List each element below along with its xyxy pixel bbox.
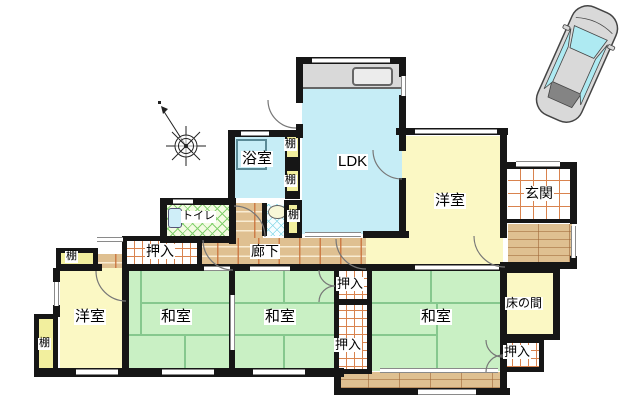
label-closet: 押入 — [503, 345, 531, 359]
tatami-line — [430, 268, 432, 304]
tatami-line — [372, 334, 436, 336]
window — [312, 58, 390, 63]
label-western-room: 洋室 — [434, 193, 466, 209]
wall — [296, 57, 303, 103]
label-bathroom: 浴室 — [241, 151, 273, 167]
toilet-icon — [168, 208, 182, 228]
window — [97, 237, 123, 242]
tatami-line — [283, 270, 285, 302]
window — [415, 129, 497, 134]
sliding-door — [380, 368, 498, 373]
window — [253, 369, 305, 375]
wall — [500, 164, 507, 238]
wall — [53, 268, 60, 282]
wall — [399, 57, 406, 77]
entrance-step-edge — [505, 219, 573, 223]
label-shelf: 棚 — [284, 175, 297, 187]
entrance-wood-hall — [508, 224, 572, 265]
tatami-line — [140, 302, 232, 304]
label-shelf: 棚 — [287, 210, 300, 222]
wall — [122, 268, 129, 372]
sliding-door — [305, 232, 361, 237]
wall — [553, 268, 560, 340]
wall — [500, 334, 558, 340]
wall — [228, 130, 235, 205]
label-alcove: 床の間 — [505, 297, 543, 310]
wall — [53, 305, 60, 317]
corridor-vertical — [235, 203, 263, 238]
wall — [570, 162, 577, 224]
wall — [500, 370, 507, 392]
sliding-door — [415, 265, 499, 270]
label-toilet: トイレ — [181, 211, 216, 223]
window — [173, 199, 193, 204]
wall — [363, 231, 409, 238]
tatami-line — [232, 302, 334, 304]
entrance-door — [516, 161, 560, 167]
label-closet: 押入 — [145, 244, 175, 259]
wall — [160, 198, 236, 205]
window — [54, 282, 59, 306]
sliding-door — [230, 295, 235, 350]
label-shelf: 棚 — [38, 338, 51, 350]
label-shelf: 棚 — [284, 139, 297, 151]
window — [401, 76, 406, 96]
label-japanese-room: 和室 — [264, 309, 296, 325]
label-entrance: 玄関 — [524, 186, 554, 201]
floor-plan: 浴室 棚 棚 LDK 洋室 玄関 トイレ 棚 押入 廊下 棚 洋室 棚 和室 和… — [0, 0, 640, 409]
tatami-line — [283, 336, 285, 372]
kitchen-sink — [352, 67, 393, 86]
wall — [160, 236, 236, 243]
label-japanese-room: 和室 — [420, 309, 452, 325]
sliding-door — [250, 266, 290, 271]
wall — [399, 178, 406, 238]
sliding-door — [204, 266, 230, 271]
label-japanese-room: 和室 — [160, 309, 192, 325]
window — [76, 369, 118, 375]
label-shelf: 棚 — [65, 251, 78, 263]
wall — [399, 133, 406, 151]
window — [418, 389, 476, 395]
window — [241, 131, 269, 136]
tatami-line — [126, 334, 232, 336]
car-top-view-icon — [527, 0, 626, 129]
compass-rose-icon — [158, 101, 206, 166]
wall — [56, 264, 102, 271]
label-closet: 押入 — [334, 338, 362, 352]
wall — [122, 264, 370, 271]
wall — [500, 266, 560, 273]
label-corridor: 廊下 — [250, 244, 280, 259]
wall — [262, 203, 267, 236]
label-ldk: LDK — [337, 154, 368, 170]
tatami-line — [184, 336, 186, 372]
window — [571, 226, 576, 258]
label-western-room: 洋室 — [74, 309, 106, 325]
closet-center-divider — [334, 299, 372, 305]
label-closet: 押入 — [336, 277, 364, 291]
window — [162, 369, 214, 375]
